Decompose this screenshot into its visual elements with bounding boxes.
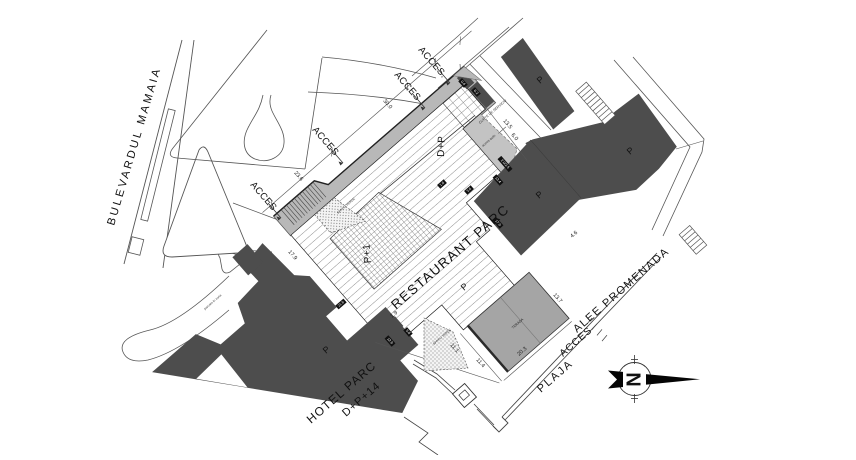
svg-text:D+P: D+P: [436, 135, 448, 157]
svg-text:P+1: P+1: [361, 243, 374, 263]
svg-text:N: N: [624, 372, 646, 386]
